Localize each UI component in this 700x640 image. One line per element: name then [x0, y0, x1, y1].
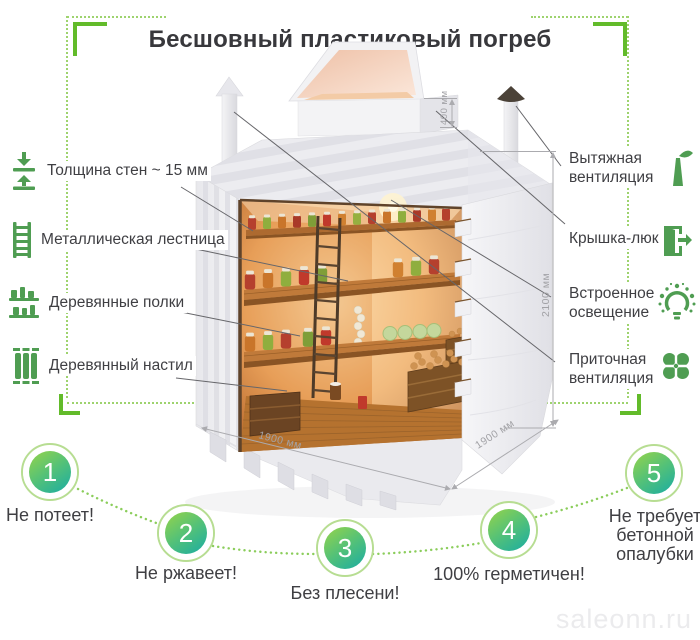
- dim-cellar-height: 2100 мм: [540, 273, 552, 317]
- feature-label: Деревянный настил: [46, 356, 196, 376]
- feature-wooden-shelves: Деревянные полки: [9, 286, 187, 320]
- benefit-circle-5: 5: [625, 444, 683, 502]
- watermark: saleonn.ru: [556, 604, 692, 635]
- cellar-tank: [134, 42, 604, 518]
- feature-label: Приточная вентиляция: [566, 349, 668, 389]
- exhaust-vent-icon: [663, 148, 693, 191]
- benefit-label-4: 100% герметичен!: [424, 565, 594, 584]
- benefit-circle-4: 4: [480, 501, 538, 559]
- benefit-circle-2: 2: [157, 504, 215, 562]
- frame-dotted-bottom-right: [530, 402, 628, 404]
- feature-ladder: Металлическая лестница: [13, 222, 228, 258]
- frame-dotted-right: [627, 16, 629, 398]
- benefit-circle-1: 1: [21, 443, 79, 501]
- frame-dotted-top-right: [531, 16, 628, 18]
- dim-hatch-height: 400 мм: [439, 90, 450, 125]
- ladder-icon: [13, 222, 31, 258]
- infographic-canvas: Бесшовный пластиковый погреб: [0, 0, 700, 640]
- feature-label: Вытяжная вентиляция: [566, 148, 668, 188]
- page-title: Бесшовный пластиковый погреб: [0, 26, 700, 54]
- feature-label: Деревянные полки: [46, 293, 187, 313]
- benefit-circle-3: 3: [316, 519, 374, 577]
- wooden-shelves-icon: [9, 286, 39, 320]
- benefit-label-5: Не требует бетонной опалубки: [606, 507, 700, 564]
- frame-dotted-top-left: [67, 16, 166, 18]
- leader-lines: [176, 106, 565, 391]
- supply-fan-icon: [662, 352, 690, 385]
- dim-cellar-width: 1900 мм: [257, 429, 303, 452]
- feature-exhaust-vent: Вытяжная вентиляция: [566, 148, 668, 188]
- wall-thickness-icon: [11, 152, 37, 190]
- feature-wall-thickness: Толщина стен ~ 15 мм: [11, 152, 211, 190]
- hatch-lid-icon: [660, 226, 692, 261]
- frame-dotted-left: [66, 16, 68, 398]
- feature-label: Крышка-люк: [566, 228, 668, 249]
- corner-bracket-bottom-left: [59, 394, 80, 415]
- feature-label: Толщина стен ~ 15 мм: [44, 161, 211, 181]
- corner-bracket-bottom-right: [620, 394, 641, 415]
- frame-dotted-bottom-left: [67, 402, 198, 404]
- feature-wooden-planks: Деревянный настил: [13, 348, 196, 384]
- benefit-label-2: Не ржавеет!: [128, 564, 244, 583]
- dim-cellar-depth: 1900 мм: [473, 417, 517, 451]
- feature-supply-vent: Приточная вентиляция: [566, 349, 668, 389]
- dimension-lines: [202, 99, 558, 490]
- benefit-label-1: Не потеет!: [0, 506, 100, 525]
- light-bulb-icon: [658, 283, 696, 330]
- feature-label: Встроенное освещение: [566, 283, 668, 323]
- benefit-label-3: Без плесени!: [284, 584, 406, 603]
- feature-hatch-lid: Крышка-люк: [566, 228, 668, 249]
- wooden-planks-icon: [13, 348, 39, 384]
- feature-label: Металлическая лестница: [38, 230, 228, 250]
- feature-light: Встроенное освещение: [566, 283, 668, 323]
